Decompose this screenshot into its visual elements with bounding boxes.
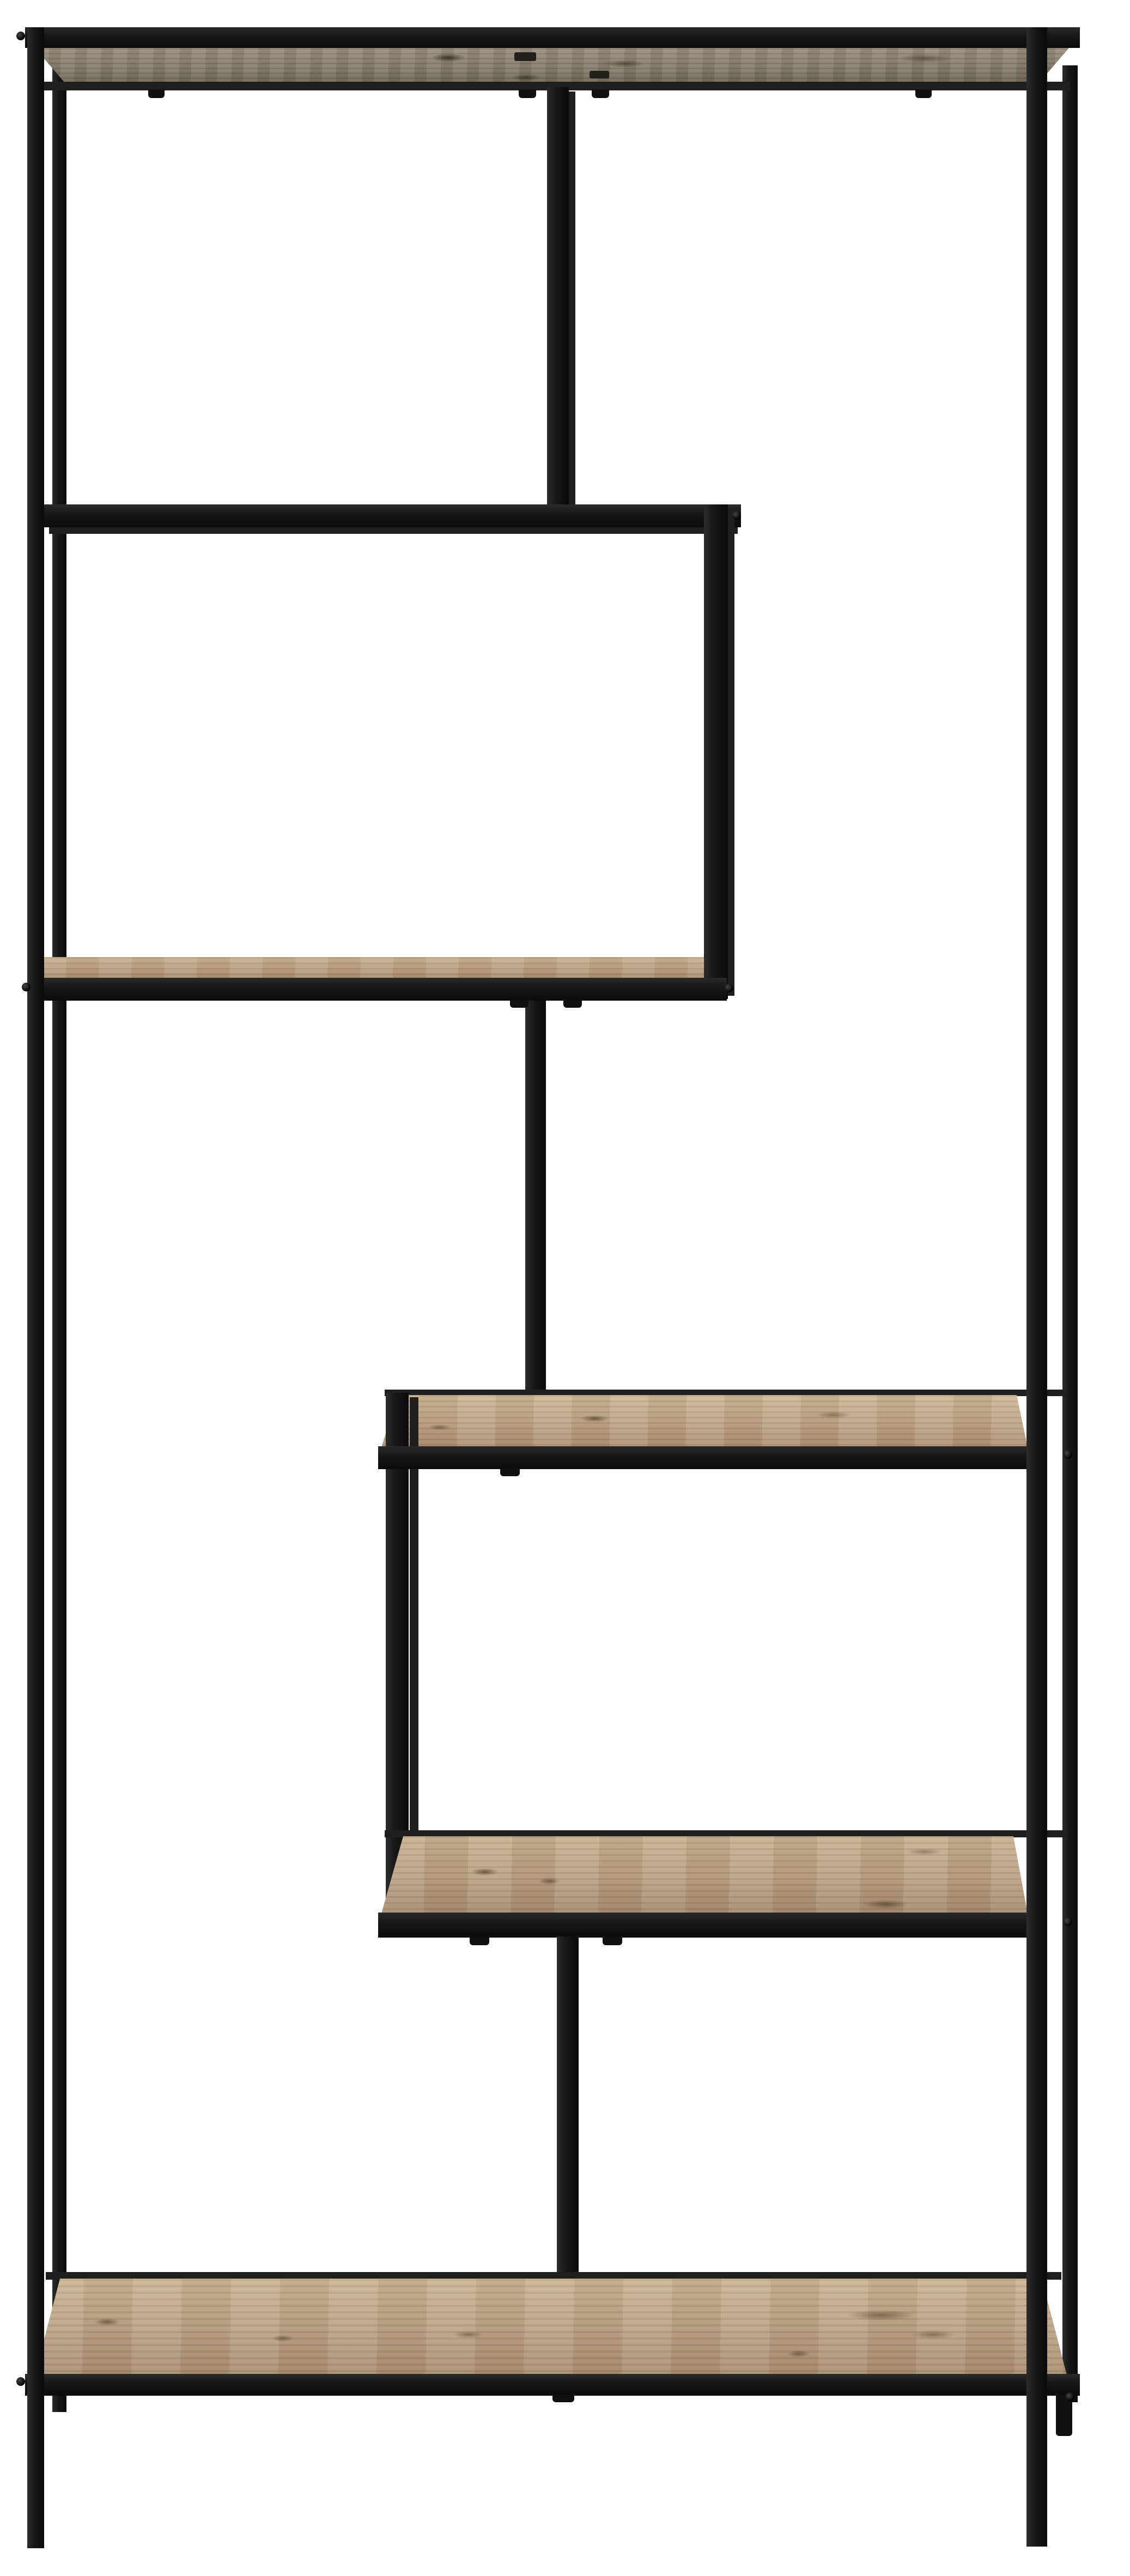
front-left-leg <box>27 27 44 2548</box>
middle-top-shelf-wood-top <box>381 1395 1028 1447</box>
bolt <box>1064 1450 1072 1459</box>
shelf-clip <box>592 89 609 98</box>
upper-box-top-bar <box>33 504 741 527</box>
shelf-clip <box>148 89 165 98</box>
bolt <box>1064 1917 1072 1926</box>
shelf-clip <box>603 1936 622 1945</box>
shelf-clip <box>500 1468 520 1476</box>
bolt <box>1066 2392 1074 2401</box>
upper-shelf-front-bar <box>27 978 727 1001</box>
center-post-upper <box>547 87 569 528</box>
bolt <box>732 511 741 520</box>
upper-shelf-wood-top <box>34 957 718 979</box>
bolt <box>16 32 25 40</box>
middle-bottom-shelf-front-bar <box>378 1913 1047 1938</box>
center-post-upper-back-edge <box>569 92 575 527</box>
top-shelf-top-bar <box>25 27 1080 48</box>
shelf-clip <box>470 1936 489 1945</box>
bolt <box>16 2377 25 2386</box>
upper-box-right-post <box>704 504 728 999</box>
bolt <box>22 983 31 991</box>
upper-box-top-bar-front-edge <box>49 527 738 534</box>
bolt <box>725 984 733 992</box>
middle-top-shelf-front-bar <box>378 1446 1047 1469</box>
upper-box-right-post-back-edge <box>728 511 734 996</box>
front-right-leg <box>1026 27 1047 2547</box>
bottom-shelf-front-bar <box>25 2374 1080 2396</box>
shelf-clip <box>552 2395 574 2402</box>
middle-bottom-shelf-wood-top <box>381 1836 1028 1914</box>
bookcase-product-photo <box>0 0 1130 2576</box>
shelf-clip <box>915 89 932 98</box>
back-left-leg <box>52 65 66 2412</box>
top-shelf-screw-mark <box>590 71 609 78</box>
shelf-clip <box>519 89 536 98</box>
top-shelf-screw-mark <box>514 52 536 61</box>
shelf-clip <box>510 1000 528 1008</box>
bottom-shelf-back-edge <box>46 2272 1061 2280</box>
back-right-leg <box>1062 65 1078 2402</box>
top-shelf-wood-underside <box>35 48 1069 83</box>
shelf-clip <box>563 1000 582 1008</box>
bottom-shelf-wood-top <box>35 2279 1067 2375</box>
